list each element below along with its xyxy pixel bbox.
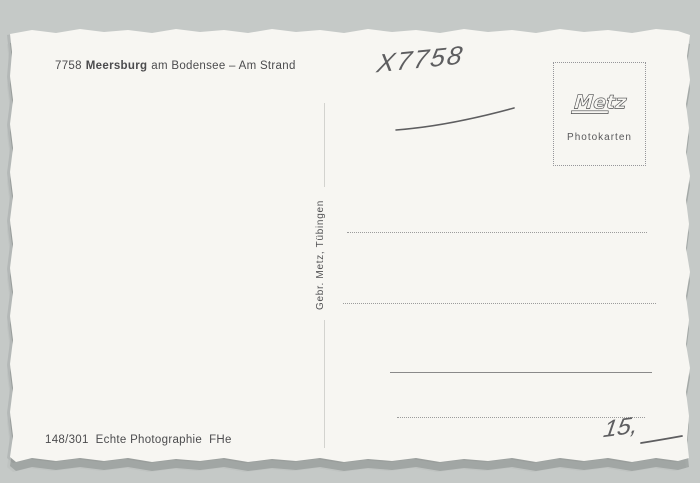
divider-line-lower bbox=[324, 320, 325, 448]
handwritten-price: 15, bbox=[601, 412, 639, 444]
footer-caption: 148/301Echte PhotographieFHe bbox=[45, 434, 239, 446]
divider-line-upper bbox=[324, 103, 325, 187]
caption: 7758Meersburgam Bodensee – Am Strand bbox=[55, 60, 300, 72]
metz-logo: Metz bbox=[566, 81, 634, 125]
footer-initials: FHe bbox=[209, 434, 232, 446]
address-line-1 bbox=[347, 232, 647, 233]
handwritten-underline bbox=[388, 80, 518, 135]
handwritten-price-dash bbox=[638, 432, 688, 446]
metz-logo-text: Metz bbox=[573, 91, 628, 114]
footer-label: Echte Photographie bbox=[96, 434, 202, 446]
postcard-back: 7758Meersburgam Bodensee – Am Strand X77… bbox=[10, 28, 690, 464]
publisher-spine-text: Gebr. Metz, Tübingen bbox=[315, 185, 329, 325]
caption-tail: am Bodensee – Am Strand bbox=[151, 60, 295, 72]
caption-code: 7758 bbox=[55, 60, 82, 72]
handwritten-catalog-code: X7758 bbox=[375, 40, 466, 80]
scan-background: 7758Meersburgam Bodensee – Am Strand X77… bbox=[0, 0, 700, 483]
footer-code: 148/301 bbox=[45, 434, 89, 446]
stamp-box-label: Photokarten bbox=[567, 132, 632, 143]
address-line-3 bbox=[390, 372, 652, 373]
address-line-2 bbox=[343, 303, 656, 304]
caption-place: Meersburg bbox=[86, 60, 148, 72]
stamp-box: Metz Photokarten bbox=[553, 62, 646, 166]
